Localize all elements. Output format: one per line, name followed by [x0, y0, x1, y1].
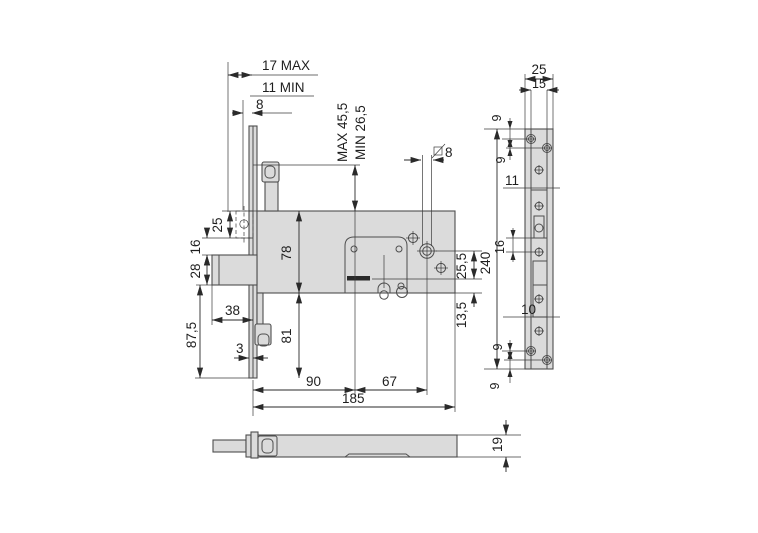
dim-max455-label: MAX 45,5 — [335, 103, 350, 162]
square-spindle-symbol-icon — [432, 144, 445, 158]
dim-16-label: 16 — [188, 239, 203, 254]
dim-38-label: 38 — [225, 303, 240, 318]
screw-top-left — [526, 134, 536, 144]
dim-875-label: 87,5 — [184, 322, 199, 348]
dim-side-10-label: 10 — [521, 302, 536, 317]
dim-side-16-label: 16 — [493, 240, 507, 254]
dim-side-25-label: 25 — [531, 62, 546, 77]
dim-67-label: 67 — [382, 374, 397, 389]
dim-3-label: 3 — [236, 341, 244, 356]
screw-bottom-right — [542, 355, 552, 365]
dim-240-label: 240 — [478, 252, 493, 275]
dim-255-label: 25,5 — [454, 253, 469, 279]
dim-screw-top-2-label: 9 — [494, 156, 508, 163]
bolt-section — [213, 440, 246, 452]
dim-90-label: 90 — [306, 374, 321, 389]
dim-81-label: 81 — [279, 328, 294, 343]
flange-section — [246, 435, 251, 457]
bottom-view-dimensions: 19 — [457, 420, 521, 472]
dim-135-label: 13,5 — [454, 302, 469, 328]
dim-185-label: 185 — [342, 391, 365, 406]
bottom-view: 19 — [213, 420, 521, 472]
side-view: 25 15 9 9 11 16 10 — [488, 62, 560, 389]
screw-top-right — [542, 143, 552, 153]
spring-lever — [347, 276, 370, 281]
faceplate-section — [251, 432, 258, 458]
dim-side-11-label: 11 — [505, 173, 519, 188]
dim-11min-label: 11 MIN — [262, 80, 305, 95]
bottom-view-parts — [213, 432, 457, 458]
dim-78-label: 78 — [279, 245, 294, 260]
dim-25-label: 25 — [210, 217, 225, 232]
front-view: 17 MAX 11 MIN 8 MAX 45,5 MIN 26,5 8 — [184, 58, 525, 416]
front-view-parts — [212, 126, 455, 378]
dim-28-label: 28 — [188, 263, 203, 278]
lock-technical-drawing: 17 MAX 11 MIN 8 MAX 45,5 MIN 26,5 8 — [0, 0, 758, 533]
lower-column — [257, 293, 263, 324]
technical-drawing-page: 17 MAX 11 MIN 8 MAX 45,5 MIN 26,5 8 — [0, 0, 758, 533]
screw-bottom-left — [526, 346, 536, 356]
dim-screw-bottom-2-label: 9 — [488, 382, 502, 389]
side-view-parts — [525, 129, 553, 369]
dim-8-label: 8 — [256, 97, 264, 112]
dim-square8-label: 8 — [445, 145, 453, 160]
top-column — [265, 182, 278, 211]
dim-screw-bottom-1-label: 9 — [491, 343, 505, 350]
dim-17max-label: 17 MAX — [262, 58, 310, 73]
dim-screw-top-1-label: 9 — [490, 114, 504, 121]
dim-side-15-label: 15 — [532, 77, 546, 91]
dim-min265-label: MIN 26,5 — [353, 105, 368, 160]
dim-19-label: 19 — [490, 437, 505, 452]
